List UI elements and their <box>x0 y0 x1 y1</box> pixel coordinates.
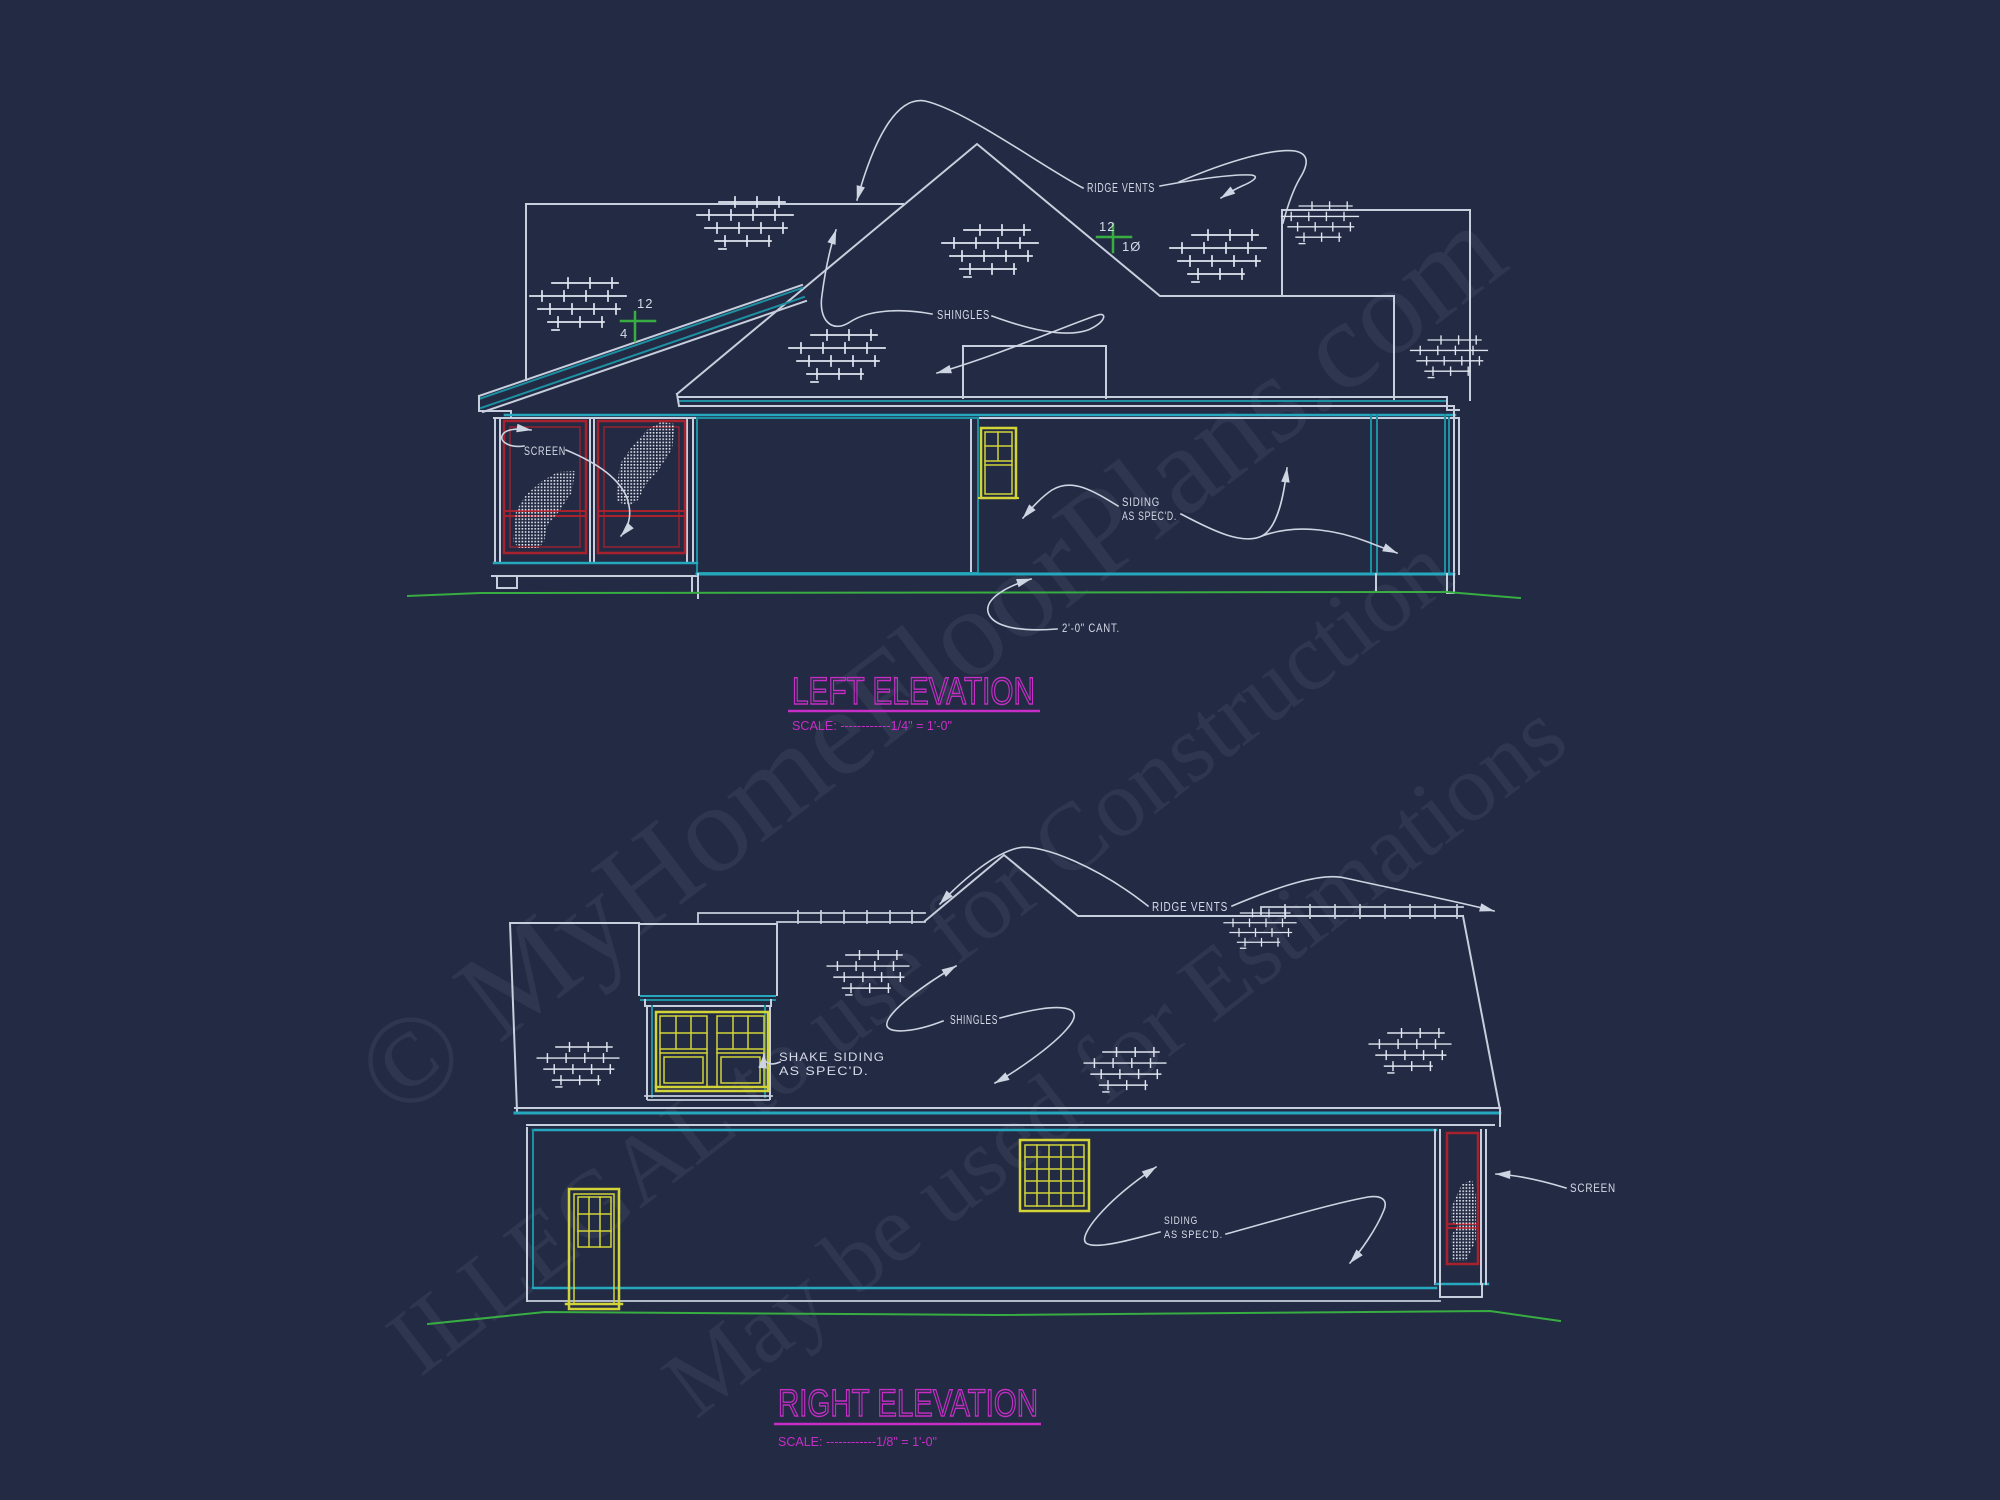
svg-text:4: 4 <box>620 326 628 341</box>
svg-text:SCALE: ------------1/8" = 1'-0: SCALE: ------------1/8" = 1'-0" <box>778 1434 937 1449</box>
svg-text:SHINGLES: SHINGLES <box>937 307 990 322</box>
svg-text:SHAKE SIDING: SHAKE SIDING <box>779 1050 885 1064</box>
svg-text:12: 12 <box>1099 219 1115 234</box>
svg-text:SCREEN: SCREEN <box>1570 1181 1616 1195</box>
svg-text:2'-0" CANT.: 2'-0" CANT. <box>1062 621 1120 635</box>
svg-text:SCALE: ------------1/4" = 1'-0: SCALE: ------------1/4" = 1'-0" <box>792 718 952 733</box>
svg-text:1Ø: 1Ø <box>1122 239 1141 254</box>
svg-text:SHINGLES: SHINGLES <box>950 1012 998 1027</box>
svg-text:AS SPEC'D.: AS SPEC'D. <box>1164 1229 1223 1241</box>
svg-text:SIDING: SIDING <box>1122 495 1160 509</box>
svg-text:AS SPEC'D.: AS SPEC'D. <box>779 1064 869 1078</box>
svg-text:SIDING: SIDING <box>1164 1215 1198 1227</box>
svg-text:RIDGE VENTS: RIDGE VENTS <box>1087 180 1155 195</box>
svg-text:AS SPEC'D.: AS SPEC'D. <box>1122 509 1177 523</box>
svg-text:SCREEN: SCREEN <box>524 444 566 458</box>
svg-text:RIDGE VENTS: RIDGE VENTS <box>1152 899 1228 914</box>
svg-text:LEFT ELEVATION: LEFT ELEVATION <box>792 671 1035 713</box>
svg-text:RIGHT ELEVATION: RIGHT ELEVATION <box>778 1383 1038 1425</box>
svg-text:12: 12 <box>637 296 653 311</box>
